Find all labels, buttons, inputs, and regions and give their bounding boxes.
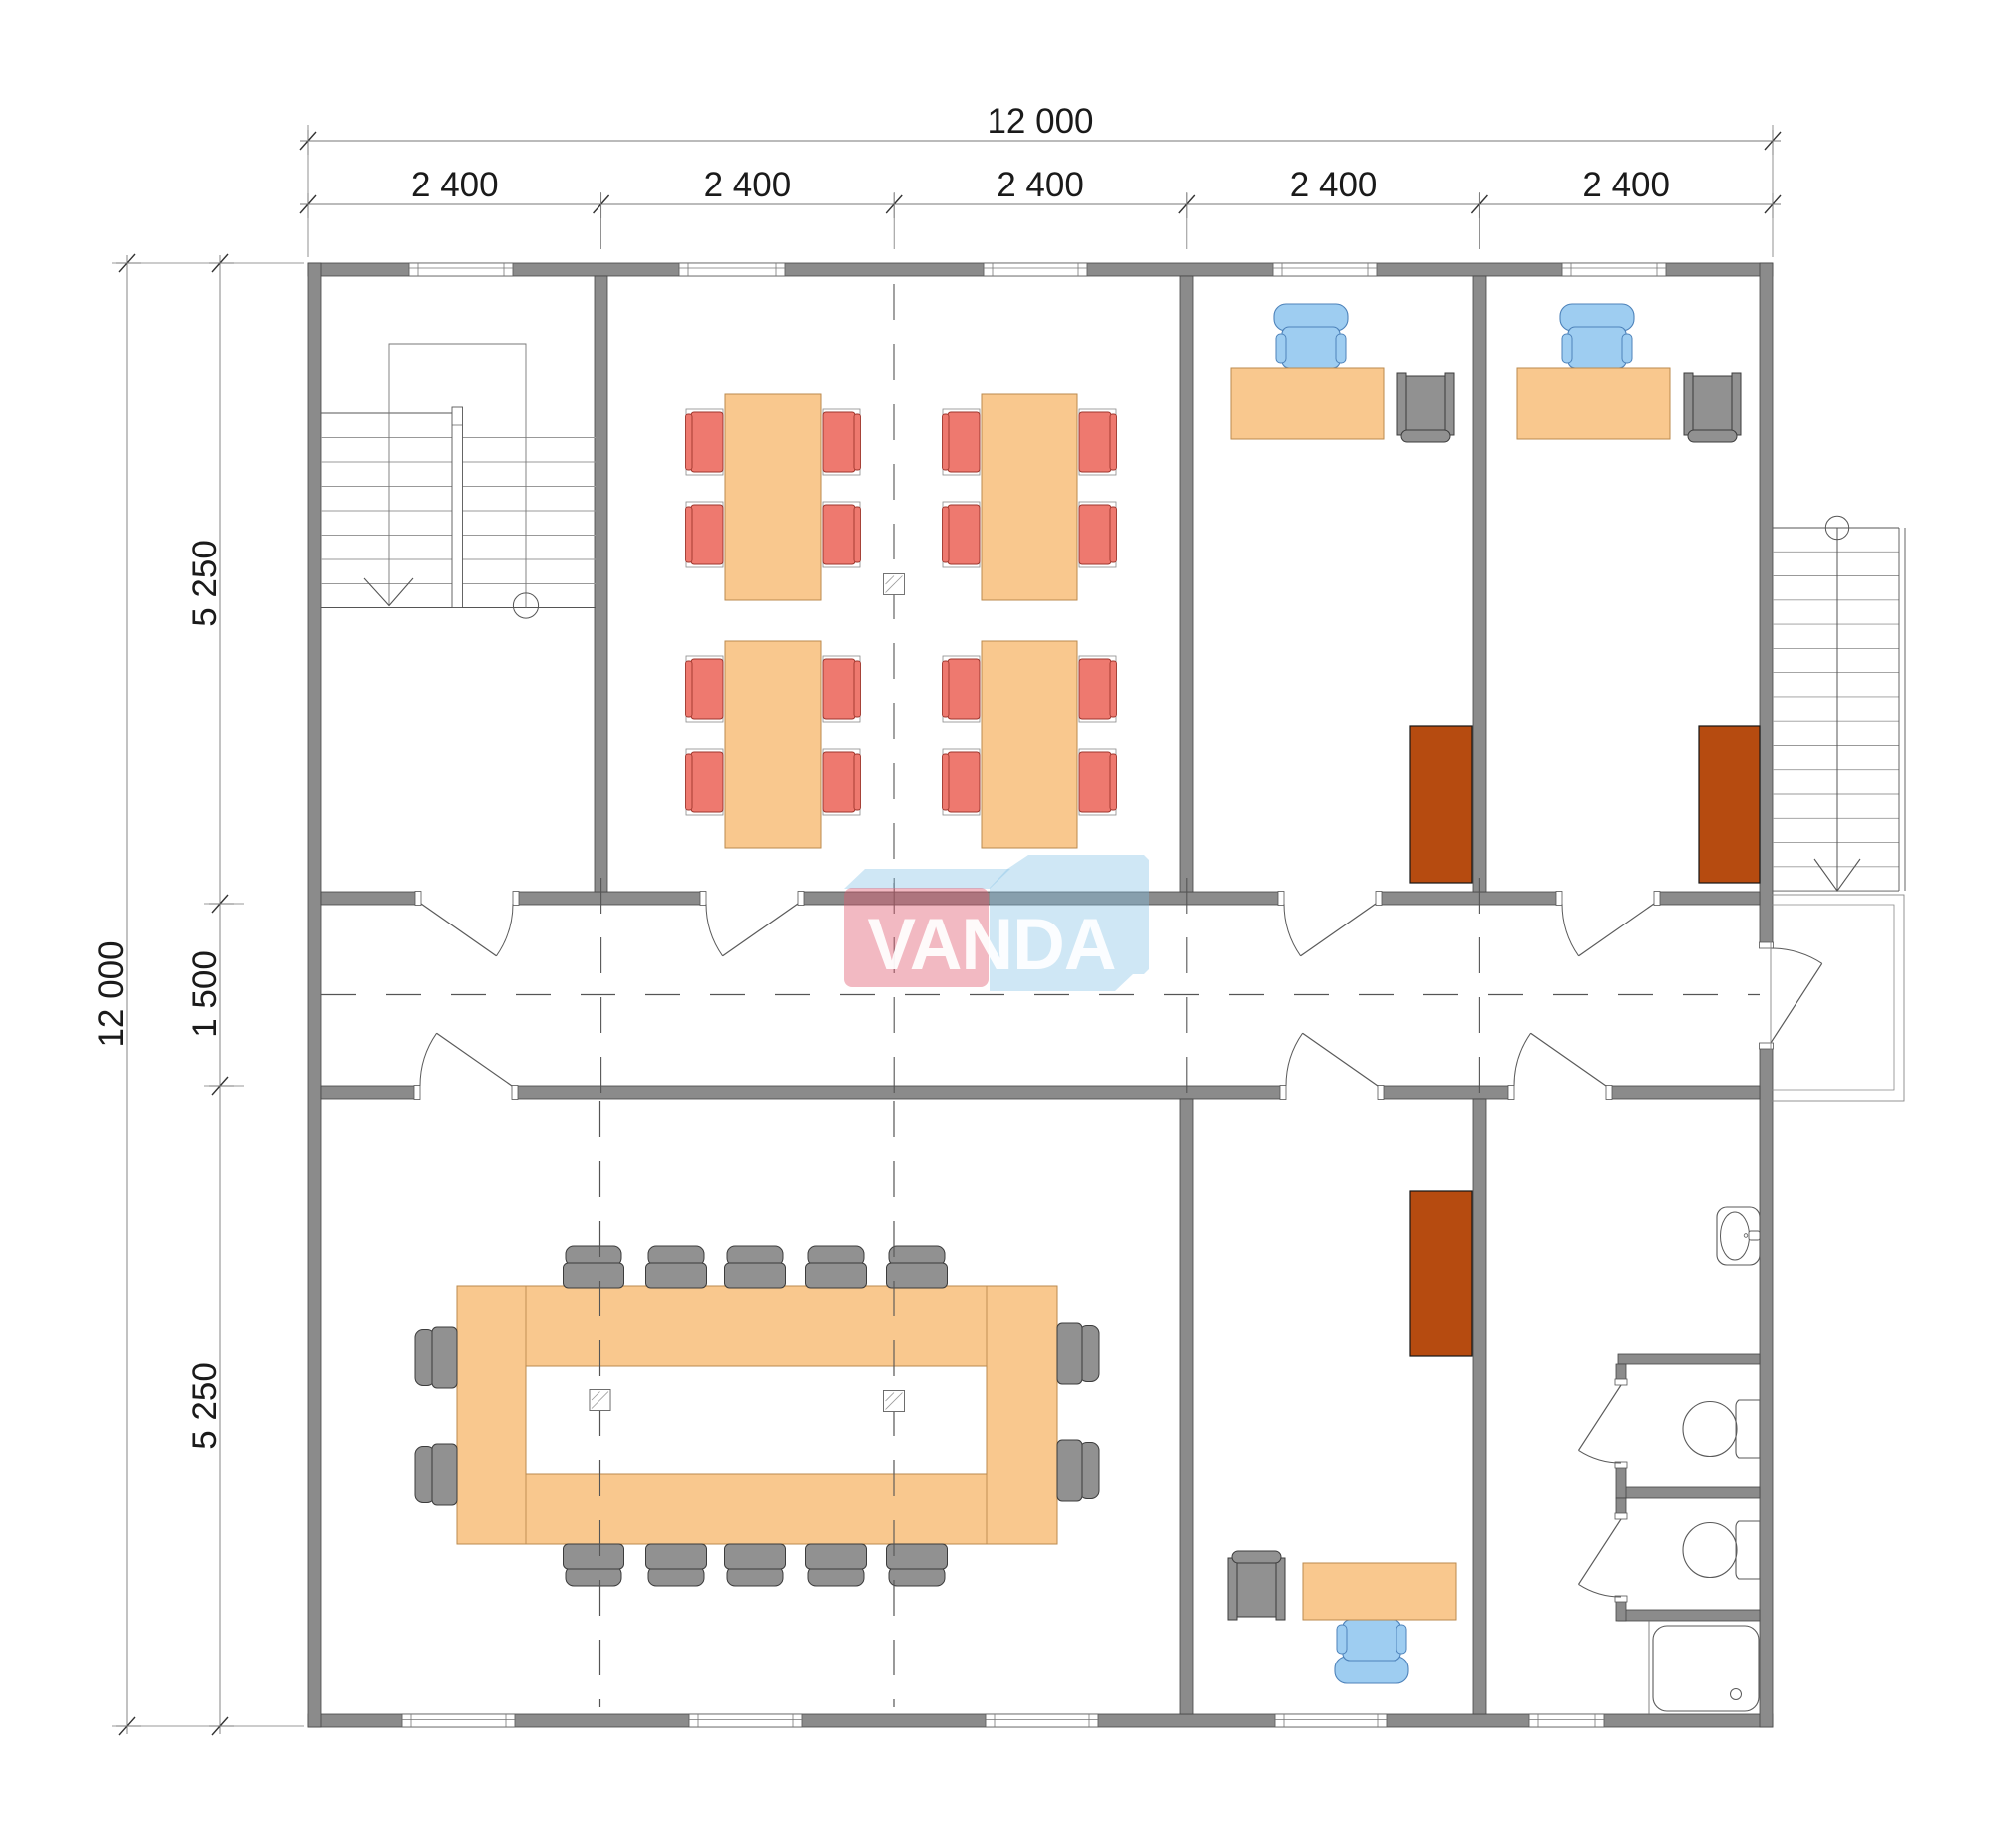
svg-text:12 000: 12 000	[987, 102, 1093, 141]
svg-text:5 250: 5 250	[186, 1362, 224, 1450]
svg-text:2 400: 2 400	[1290, 166, 1378, 204]
svg-text:2 400: 2 400	[704, 166, 792, 204]
svg-text:1 500: 1 500	[186, 950, 224, 1038]
svg-text:12 000: 12 000	[92, 940, 131, 1047]
svg-text:2 400: 2 400	[1582, 166, 1670, 204]
svg-text:2 400: 2 400	[411, 166, 499, 204]
svg-text:VANDA: VANDA	[867, 905, 1115, 985]
svg-text:5 250: 5 250	[186, 540, 224, 627]
svg-text:2 400: 2 400	[997, 166, 1084, 204]
